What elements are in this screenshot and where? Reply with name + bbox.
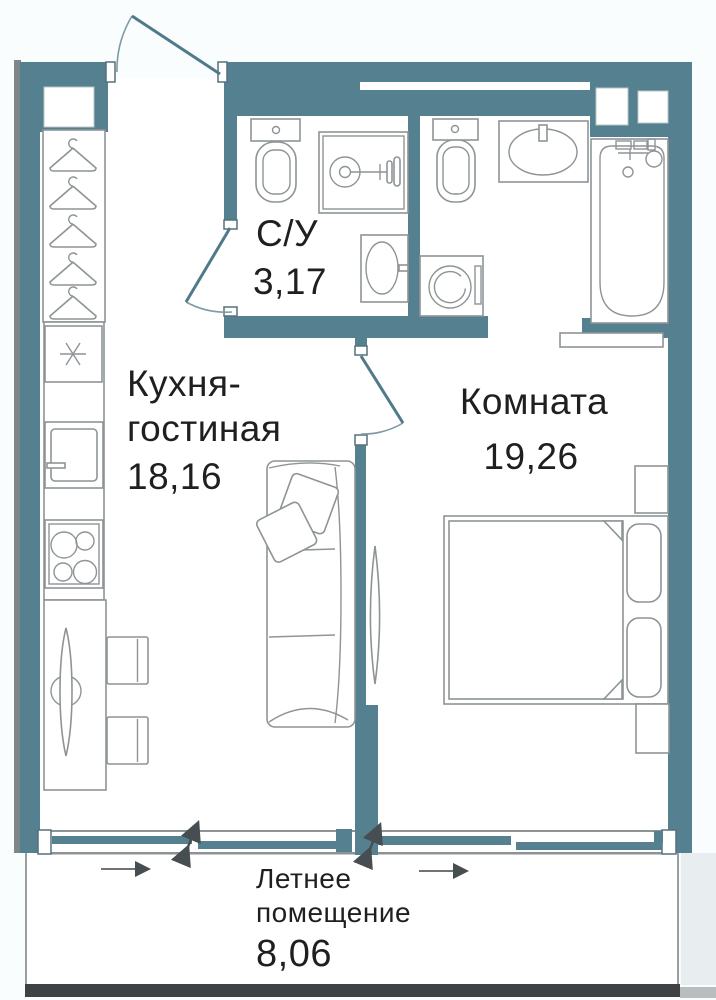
- sofa: [255, 461, 355, 727]
- nightstand-icon: [636, 704, 669, 753]
- glazing-panel-1: [52, 836, 192, 844]
- shower-icon: [319, 132, 408, 213]
- balcony-slab: [25, 984, 680, 997]
- room-area-summer: 8,06: [256, 933, 332, 975]
- room-area-kitchen: 18,16: [127, 456, 222, 497]
- partition-wall: [355, 445, 366, 705]
- room-label-summer-line1: Летнее: [256, 863, 351, 894]
- bathrooms-bottom-wall: [224, 316, 488, 338]
- fridge-icon: [45, 422, 103, 488]
- vent-niche-2: [638, 91, 668, 123]
- right-outside-strip: [681, 853, 716, 985]
- floor-plan: С/У 3,17 Кухня- гостиная 18,16 Комната 1…: [0, 0, 716, 1000]
- pillow-icon: [627, 524, 661, 602]
- room-label-kitchen-line2: гостиная: [127, 408, 281, 449]
- decor-leaf: [60, 628, 72, 756]
- sliding-panel-icon: [560, 333, 663, 347]
- shaft-sliver: [360, 82, 590, 90]
- partition-stub: [355, 338, 367, 346]
- partition-wall-lower: [355, 705, 378, 855]
- room-label-summer-line2: помещение: [256, 897, 411, 928]
- pillow-icon: [627, 618, 661, 697]
- room-area-bedroom: 19,26: [483, 436, 578, 477]
- room-label-bedroom: Комната: [460, 381, 608, 422]
- nightstand-icon: [635, 466, 668, 513]
- window-post: [336, 829, 352, 852]
- band-over-wc: [224, 82, 360, 116]
- balcony-edge-left: [25, 853, 27, 984]
- table-top: [44, 600, 106, 790]
- room-area-bathroom: 3,17: [253, 261, 327, 302]
- toilet-icon: [251, 119, 300, 202]
- glazing-step: [654, 831, 663, 843]
- washbasin-icon: [361, 235, 408, 302]
- bathtub-icon: [591, 139, 668, 323]
- stove-icon: [45, 520, 103, 588]
- glazing-panel-3: [378, 836, 511, 845]
- bed-icon: [444, 516, 668, 704]
- sink-star-icon: [45, 326, 102, 382]
- kitchen-counter: [44, 322, 104, 600]
- left-wall-shadow: [14, 60, 21, 853]
- entry-shaft-niche: [44, 87, 94, 127]
- top-wall-right: [227, 62, 692, 82]
- left-wall: [20, 62, 40, 853]
- toilet-icon: [433, 119, 478, 202]
- sink-icon: [499, 121, 588, 182]
- band-over-bathroom: [360, 90, 590, 116]
- glazing-panel-2: [198, 841, 344, 849]
- vent-niche-1: [596, 88, 628, 125]
- room-label-bathroom: С/У: [256, 213, 318, 254]
- glazing-panel-4: [516, 842, 662, 850]
- window-jamb-left: [38, 830, 51, 854]
- room-label-kitchen-line1: Кухня-: [127, 363, 241, 404]
- window-jamb-right: [662, 830, 676, 854]
- balcony-slab-end: [680, 987, 716, 998]
- right-wall: [668, 62, 692, 853]
- chair-icon: [107, 717, 148, 764]
- wc-bath-divider: [408, 116, 420, 316]
- top-wall-left: [20, 62, 112, 82]
- washing-machine-icon: [420, 256, 483, 316]
- chair-icon: [107, 637, 148, 684]
- balcony-edge-right: [677, 853, 679, 984]
- wc-left-wall: [224, 116, 237, 222]
- wardrobe: [43, 130, 105, 322]
